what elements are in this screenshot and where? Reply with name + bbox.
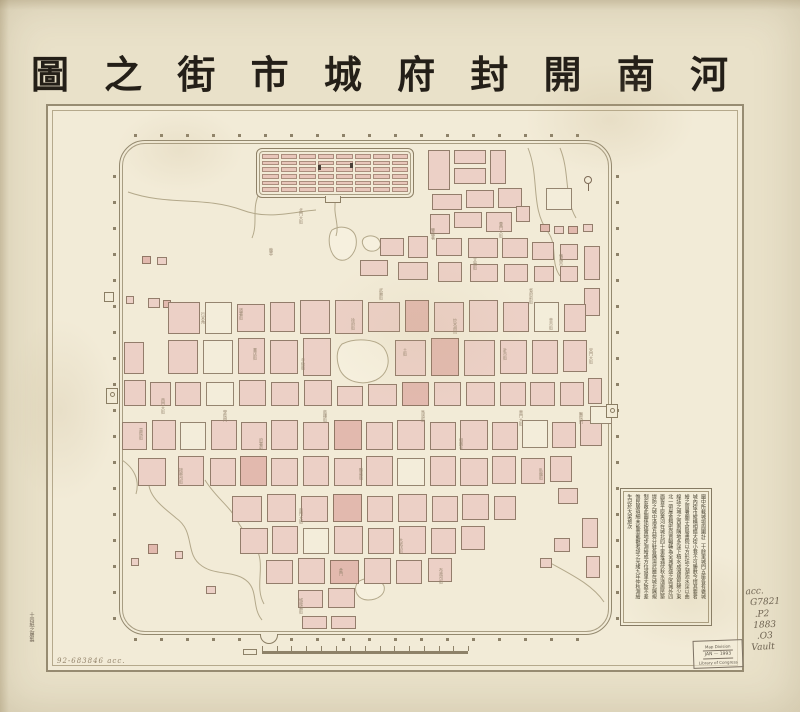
scale-tick xyxy=(380,646,381,651)
city-block xyxy=(466,190,494,208)
barracks-bar xyxy=(299,174,316,179)
city-block xyxy=(210,458,236,486)
accession-note: 92-683846 acc. xyxy=(57,657,125,665)
city-block xyxy=(558,488,578,504)
city-block xyxy=(266,560,293,584)
city-block xyxy=(398,262,428,280)
street-label: 土街 xyxy=(402,348,408,356)
barracks-bar xyxy=(373,174,390,179)
city-block xyxy=(584,246,600,280)
map-sheet: 圖 之 街 市 城 府 封 開 南 河 北門大街龍亭雙龍巷曹門大街鵓鴿市行宮角書… xyxy=(0,0,800,712)
barracks-bar xyxy=(392,181,409,186)
call-number-note: acc.G7821.P21883.O3Vault xyxy=(745,585,798,655)
city-block xyxy=(434,382,461,406)
scale-tick xyxy=(409,646,410,651)
city-block xyxy=(175,382,201,406)
scale-tick xyxy=(350,646,351,651)
barracks-bar xyxy=(336,174,353,179)
library-stamp: Map Division JAN — 1993 Library of Congr… xyxy=(693,639,744,669)
street-label: 行宮角 xyxy=(200,312,206,324)
city-block xyxy=(270,302,295,332)
street-label: 針市街 xyxy=(502,348,508,360)
city-block xyxy=(298,558,325,584)
barracks-bar xyxy=(281,181,298,186)
city-block xyxy=(502,238,528,258)
scale-tick xyxy=(262,646,263,651)
barracks-bar xyxy=(318,154,335,159)
city-block xyxy=(124,342,144,374)
city-block xyxy=(330,560,359,584)
city-block xyxy=(532,242,554,260)
barracks-bar xyxy=(336,187,353,192)
city-block xyxy=(124,380,146,406)
city-block xyxy=(126,296,134,304)
legend-column: 堤防之城中滿漢兵營分駐各隅演武廳在城北隅規 xyxy=(651,494,657,620)
street-label: 書店街 xyxy=(252,348,258,360)
street-label: 學院門 xyxy=(222,410,228,422)
city-block xyxy=(552,422,576,448)
city-block xyxy=(301,496,328,522)
scale-tick xyxy=(321,646,322,651)
scale-tick xyxy=(277,646,278,651)
barracks-bar xyxy=(355,154,372,159)
city-block xyxy=(428,150,450,190)
city-block xyxy=(466,382,495,406)
street-label: 草市街 xyxy=(548,318,554,330)
city-block xyxy=(402,382,429,406)
city-block xyxy=(532,340,558,374)
barracks-bar xyxy=(262,154,279,159)
barracks-bar xyxy=(355,167,372,172)
barracks-bar xyxy=(262,167,279,172)
city-block xyxy=(271,382,299,406)
barracks-bar xyxy=(281,161,298,166)
barracks-bar xyxy=(336,167,353,172)
street-label: 寺後街 xyxy=(300,358,306,370)
city-block xyxy=(380,238,404,256)
city-block xyxy=(175,551,183,559)
legend-column: 北一帶屋舍稠密商賈輻輳為全城繁盛之區城外四 xyxy=(667,494,673,620)
compound-mark xyxy=(318,165,321,170)
barracks-bar xyxy=(281,167,298,172)
scale-tick xyxy=(306,646,307,651)
city-block xyxy=(157,257,167,265)
barracks-bar xyxy=(281,187,298,192)
barracks-bar xyxy=(373,154,390,159)
street-label: 布政司街 xyxy=(438,568,444,584)
barracks-bar xyxy=(262,187,279,192)
city-block xyxy=(560,382,584,406)
city-block xyxy=(142,256,151,264)
barracks-grid xyxy=(262,154,408,192)
barracks-compound xyxy=(256,148,414,198)
maker-note: 十四紙之屠製 xyxy=(28,612,35,642)
city-block xyxy=(504,264,528,282)
city-block xyxy=(366,422,393,450)
street-label: 醫院門 xyxy=(578,412,584,424)
scale-bar-segment xyxy=(243,649,257,655)
city-block xyxy=(516,206,530,222)
scale-tick xyxy=(424,646,425,651)
barracks-bar xyxy=(299,161,316,166)
city-block xyxy=(206,586,216,594)
city-block xyxy=(331,616,356,629)
city-block xyxy=(432,496,458,522)
city-block xyxy=(584,288,600,316)
street-label: 炒米胡同 xyxy=(452,318,458,334)
city-block xyxy=(534,266,554,282)
city-block xyxy=(364,558,391,584)
street-label: 府署前 xyxy=(258,438,264,450)
barracks-bar xyxy=(392,174,409,179)
city-block xyxy=(303,422,329,450)
barracks-bar xyxy=(262,174,279,179)
legend-column: 圖中所載城垣周圍計二十餘里城門五座各有甕城 xyxy=(700,494,706,620)
northwest-gate xyxy=(104,292,114,302)
city-block xyxy=(540,224,550,232)
street-label: 武廟街 xyxy=(378,288,384,300)
city-block xyxy=(432,194,462,210)
street-label: 宋門大街 xyxy=(588,348,594,364)
scale-tick xyxy=(336,646,337,651)
city-block xyxy=(464,340,495,376)
street-label: 相國寺 xyxy=(458,438,464,450)
city-block xyxy=(337,386,363,406)
barracks-bar xyxy=(299,187,316,192)
barracks-bar xyxy=(318,187,335,192)
city-block xyxy=(540,558,552,568)
city-block xyxy=(148,544,158,554)
city-block xyxy=(334,526,363,554)
legend-column: 城內街市縱橫相錯大街小巷不可勝數今擇其要者 xyxy=(692,494,698,620)
legend-column: 制宏敞此圖係按實地步測繪成方位道里大致不差 xyxy=(642,494,648,620)
street-label: 按察司街 xyxy=(178,468,184,484)
city-block xyxy=(335,300,363,334)
city-block xyxy=(148,298,160,308)
city-block xyxy=(503,302,529,332)
city-block xyxy=(205,302,232,334)
city-block xyxy=(240,528,268,554)
city-block xyxy=(454,150,486,164)
city-block xyxy=(267,494,296,522)
city-block xyxy=(492,422,518,450)
scale-tick xyxy=(365,646,366,651)
city-block xyxy=(586,556,600,578)
city-block xyxy=(302,616,327,629)
scale-tick xyxy=(453,646,454,651)
city-block xyxy=(334,420,362,450)
barracks-bar xyxy=(262,161,279,166)
city-block xyxy=(271,458,298,486)
stamp-line: Map Division xyxy=(705,643,731,649)
compound-gate xyxy=(325,196,341,203)
city-block xyxy=(431,338,459,376)
barracks-bar xyxy=(392,167,409,172)
barracks-bar xyxy=(318,181,335,186)
city-block xyxy=(271,420,298,450)
street-label: 省府前街 xyxy=(528,288,534,304)
street-label: 徐府街 xyxy=(350,318,356,330)
city-block xyxy=(461,526,485,550)
barracks-bar xyxy=(355,187,372,192)
legend-panel: 生記於大梁旅次惟民居瑣細未能悉載觀者諒之光緒九年仲秋測繪制宏敞此圖係按實地步測繪… xyxy=(620,488,712,626)
city-block xyxy=(272,526,298,554)
city-block xyxy=(583,224,593,232)
scale-tick xyxy=(439,646,440,651)
barracks-bar xyxy=(373,181,390,186)
barracks-bar xyxy=(373,167,390,172)
city-block xyxy=(368,384,397,406)
city-block xyxy=(530,382,555,406)
city-block xyxy=(168,302,200,334)
legend-column: 繪之官署廟宇倉局書院以方形誌之湖池水窪以曲 xyxy=(683,494,689,620)
city-block xyxy=(303,456,329,486)
scale-bar xyxy=(262,651,468,654)
barracks-bar xyxy=(336,181,353,186)
stamp-line: Library of Congress xyxy=(699,659,738,665)
city-block xyxy=(498,188,522,208)
city-block xyxy=(546,188,572,210)
barracks-bar xyxy=(373,161,390,166)
city-block xyxy=(203,340,233,374)
city-block xyxy=(180,422,206,450)
barracks-bar xyxy=(281,174,298,179)
gate-ring-icon xyxy=(610,408,615,413)
city-block xyxy=(333,494,362,522)
city-block xyxy=(454,212,482,228)
stamp-date: JAN — 1993 xyxy=(703,649,734,659)
city-block xyxy=(270,340,298,374)
city-block xyxy=(490,150,506,184)
legend-column: 惟民居瑣細未能悉載觀者諒之光緒九年仲秋測繪 xyxy=(634,494,640,620)
flagpole-icon xyxy=(584,176,592,184)
city-block xyxy=(522,420,548,448)
street-label: 馬道街 xyxy=(420,410,426,422)
street-label: 倉門 xyxy=(338,568,344,576)
barracks-bar xyxy=(262,181,279,186)
city-block xyxy=(438,262,462,282)
city-block xyxy=(232,496,262,522)
city-block xyxy=(398,494,427,522)
city-block xyxy=(300,300,330,334)
city-block xyxy=(152,420,176,450)
east-gate xyxy=(606,404,618,418)
city-block xyxy=(494,496,516,520)
city-block xyxy=(211,420,237,450)
barracks-bar xyxy=(299,154,316,159)
city-block xyxy=(460,458,488,486)
city-block xyxy=(367,496,393,522)
city-block xyxy=(430,422,456,450)
city-block xyxy=(168,340,198,374)
barracks-bar xyxy=(299,167,316,172)
street-label: 大紙坊街 xyxy=(398,538,404,554)
city-block xyxy=(469,300,498,332)
city-block xyxy=(434,302,464,332)
barracks-bar xyxy=(336,154,353,159)
street-label: 雙龍巷 xyxy=(430,228,436,240)
street-label: 鵓鴿市 xyxy=(558,254,564,266)
city-block xyxy=(303,528,329,554)
city-block xyxy=(408,236,428,258)
city-block xyxy=(588,378,602,404)
city-block xyxy=(366,456,393,486)
legend-column: 生記於大梁旅次 xyxy=(626,494,632,620)
city-block xyxy=(240,456,267,486)
city-block xyxy=(328,588,355,608)
barracks-bar xyxy=(373,187,390,192)
city-block xyxy=(430,456,456,486)
city-block xyxy=(462,494,489,520)
compound-mark xyxy=(350,163,353,168)
scale-tick xyxy=(394,646,395,651)
street-label: 臥龍街 xyxy=(538,468,544,480)
barracks-bar xyxy=(299,181,316,186)
city-block xyxy=(395,340,426,376)
city-block xyxy=(460,420,488,450)
legend-text: 生記於大梁旅次惟民居瑣細未能悉載觀者諒之光緒九年仲秋測繪制宏敞此圖係按實地步測繪… xyxy=(626,494,706,620)
street-label: 西門大街 xyxy=(160,398,166,414)
barracks-bar xyxy=(355,174,372,179)
city-block xyxy=(397,420,425,450)
street-label: 道署街 xyxy=(238,308,244,320)
city-block xyxy=(431,528,456,554)
scale-tick xyxy=(291,646,292,651)
barracks-bar xyxy=(392,161,409,166)
city-block xyxy=(468,238,498,258)
city-block xyxy=(568,226,578,234)
city-block xyxy=(360,260,388,276)
city-block xyxy=(397,458,425,486)
city-block xyxy=(554,226,564,234)
street-label: 龍亭 xyxy=(268,248,274,256)
city-block xyxy=(550,456,572,482)
west-gate xyxy=(106,388,118,404)
barracks-bar xyxy=(355,161,372,166)
street-label: 北門大街 xyxy=(298,208,304,224)
barracks-bar xyxy=(392,154,409,159)
street-label: 貢院街 xyxy=(138,428,144,440)
city-block xyxy=(564,304,586,332)
street-label: 南門大街 xyxy=(298,508,304,524)
city-block xyxy=(534,302,559,332)
street-label: 縣前街 xyxy=(358,468,364,480)
city-block xyxy=(436,238,462,256)
street-label: 文廟街 xyxy=(472,258,478,270)
city-block xyxy=(368,302,400,332)
city-block xyxy=(492,456,516,484)
gate-ring-icon xyxy=(110,392,115,397)
barracks-bar xyxy=(392,187,409,192)
city-block xyxy=(405,300,429,332)
city-block xyxy=(554,538,570,552)
barracks-bar xyxy=(318,174,335,179)
street-label: 曹門大街 xyxy=(498,222,504,238)
scale-tick xyxy=(468,646,469,651)
city-block xyxy=(368,528,394,554)
barracks-bar xyxy=(355,181,372,186)
city-block xyxy=(131,558,139,566)
legend-column: 面皆平原黃河在城北四十里每遇伏秋水漲居民築 xyxy=(659,494,665,620)
city-block xyxy=(563,340,587,372)
street-label: 東門大街 xyxy=(518,410,524,426)
city-block xyxy=(138,458,166,486)
legend-column: 線誌之城之西南隅地多窪下積水成湖居民稀少東 xyxy=(675,494,681,620)
city-block xyxy=(396,560,422,584)
street-label: 鼓樓街 xyxy=(322,410,328,422)
city-block xyxy=(303,338,331,376)
barracks-bar xyxy=(281,154,298,159)
city-block xyxy=(454,168,486,184)
city-block xyxy=(239,380,266,406)
city-block xyxy=(500,382,526,406)
city-block xyxy=(206,382,234,406)
city-block xyxy=(304,380,332,406)
city-block xyxy=(582,518,598,548)
city-block xyxy=(560,266,578,282)
street-label: 城隍廟街 xyxy=(298,598,304,614)
